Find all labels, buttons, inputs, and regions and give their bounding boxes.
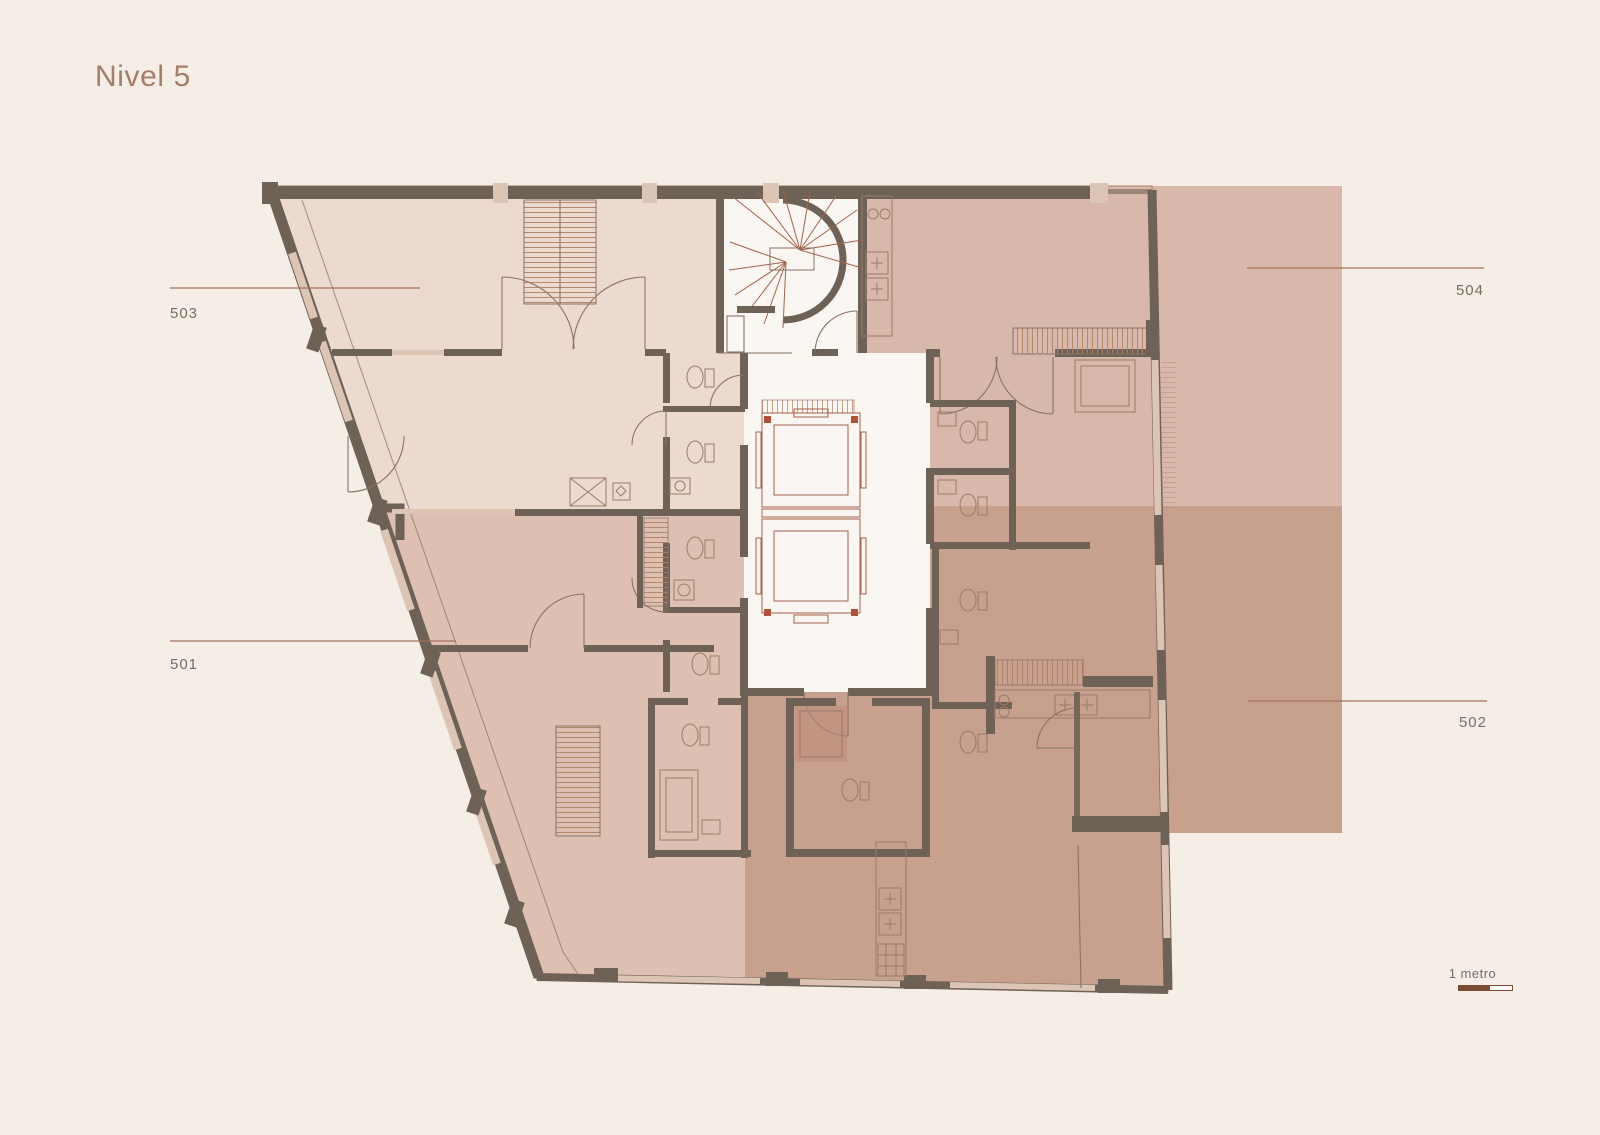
unit-label-501: 501 xyxy=(170,656,198,673)
floorplan-page: Nivel 5 xyxy=(0,0,1600,1135)
unit-overlays xyxy=(268,186,1342,992)
floor-plan-drawing: 503 501 504 502 xyxy=(0,0,1600,1135)
scale-label: 1 metro xyxy=(1430,966,1515,981)
unit-label-502: 502 xyxy=(1459,714,1487,731)
unit-label-503: 503 xyxy=(170,305,198,322)
unit-label-504: 504 xyxy=(1456,282,1484,299)
scale-indicator: 1 metro xyxy=(1430,966,1515,991)
scale-bar-fill xyxy=(1459,986,1490,990)
scale-bar xyxy=(1458,985,1513,991)
